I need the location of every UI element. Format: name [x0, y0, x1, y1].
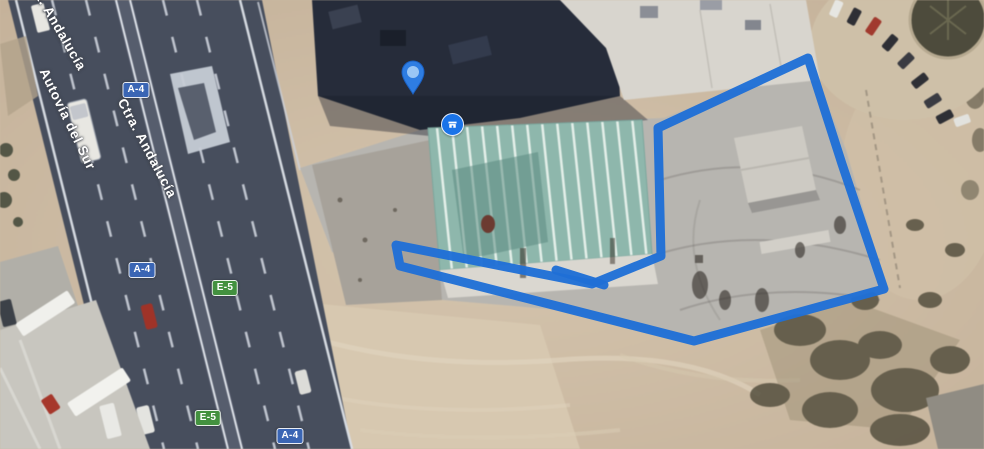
- road-label-ctra-andalucia-partial: Ctra. Andalucía: [21, 0, 89, 73]
- route-badge-e-5: E-5: [212, 280, 238, 296]
- road-label-ctra-andalucia: Ctra. Andalucía: [115, 96, 180, 201]
- dropped-pin-marker[interactable]: [399, 59, 427, 100]
- map-pin-icon: [399, 59, 427, 95]
- map-annotations-layer: Ctra. AndalucíaAutovía del SurCtra. Anda…: [0, 0, 984, 449]
- business-marker[interactable]: [441, 113, 464, 136]
- road-label-autovia-del-sur: Autovía del Sur: [37, 66, 99, 172]
- business-marker-icon: [441, 113, 464, 136]
- route-badge-e-5: E-5: [195, 410, 221, 426]
- route-badge-a-4: A-4: [128, 262, 155, 278]
- route-badge-a-4: A-4: [122, 82, 149, 98]
- satellite-map-view[interactable]: Ctra. AndalucíaAutovía del SurCtra. Anda…: [0, 0, 984, 449]
- route-badge-a-4: A-4: [276, 428, 303, 444]
